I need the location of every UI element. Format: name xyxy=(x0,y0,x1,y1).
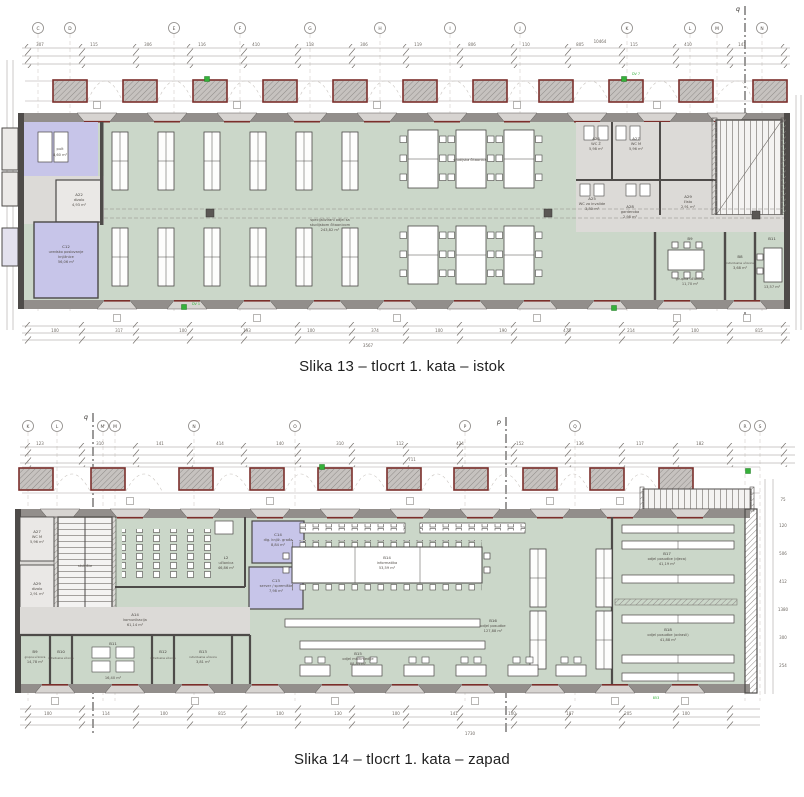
dim-value: 310 xyxy=(336,441,344,446)
room-area: 2,98 m² xyxy=(623,215,638,219)
dim-value: 123 xyxy=(36,441,44,446)
dim-value: 182 xyxy=(696,441,704,446)
dim-value: 118 xyxy=(306,42,314,47)
dim-value: 100 xyxy=(276,711,284,716)
dim-value: 205 xyxy=(624,711,632,716)
staircase xyxy=(712,118,786,215)
grid-letter: H xyxy=(378,26,381,32)
room-area: 56,06 m² xyxy=(58,260,75,264)
grid-letter: K xyxy=(626,26,629,32)
room-code: A26 xyxy=(592,136,600,141)
dim-value: 120 xyxy=(779,523,787,528)
room-name: knjižnice xyxy=(58,255,74,259)
small-table xyxy=(764,248,782,282)
room-area: 61,14 m² xyxy=(127,623,144,627)
figure-caption-slika-14: Slika 14 – tlocrt 1. kata – zapad xyxy=(0,751,804,768)
dim-value: 475 xyxy=(563,328,571,333)
grid-letter: M' xyxy=(101,424,106,430)
room-code: B13 xyxy=(199,649,207,654)
room-code: A22 xyxy=(75,192,83,197)
long-shelf xyxy=(285,619,480,627)
dim-value: 141 xyxy=(156,441,164,446)
dim-value: 100 xyxy=(392,711,400,716)
room-code: B18 xyxy=(664,627,672,632)
dim-value: 100 xyxy=(179,328,187,333)
room-area: 53,59 m² xyxy=(379,566,396,570)
room-area: 88,85 m² xyxy=(350,662,367,666)
room-name: odjel multimedije xyxy=(342,657,374,661)
room-area: 8,60 m² xyxy=(53,153,68,157)
room-area: 5,96 m² xyxy=(629,147,644,151)
marker-note: DV 7 xyxy=(632,72,640,76)
room-area: 5,98 m² xyxy=(589,147,604,151)
room-area: 14,78 m² xyxy=(27,660,44,664)
dim-value: 806 xyxy=(468,42,476,47)
dim-value: 100 xyxy=(51,328,59,333)
right-wall xyxy=(745,509,757,693)
room-a27 xyxy=(20,517,54,561)
dim-value: 805 xyxy=(576,42,584,47)
dim-value: 119 xyxy=(414,42,422,47)
room-name: specijalizirani odjel sa xyxy=(310,218,349,222)
dim-value: 506 xyxy=(779,551,787,556)
room-name: individualna učionica xyxy=(189,655,217,659)
room-code: B12 xyxy=(159,649,167,654)
right-dimension-lines xyxy=(796,95,801,330)
dim-value: 75 xyxy=(780,497,786,502)
grid-letter: J xyxy=(518,26,520,32)
grid-letter: P xyxy=(464,424,467,430)
room-code: B17 xyxy=(663,551,671,556)
room-code: B11 xyxy=(768,236,776,241)
dim-value: 130 xyxy=(334,711,342,716)
colonnade-piers: DV 7 xyxy=(25,72,788,102)
green-survey-marker xyxy=(746,469,751,474)
room-name: pult xyxy=(57,147,65,151)
dim-value: 424 xyxy=(456,441,464,446)
green-survey-marker xyxy=(182,305,187,310)
dim-value: 100 xyxy=(508,711,516,716)
dim-value: 410 xyxy=(684,42,692,47)
room-name: učionica xyxy=(219,561,234,565)
floor-plan-istok-drawing: C D E F G H I J K L M N q 307 115 306 11… xyxy=(0,0,804,350)
grid-axis-bubbles: C D E F G H I J K L M N xyxy=(33,23,768,34)
room-area: 2,91 m² xyxy=(681,205,696,209)
dim-value: 100 xyxy=(160,711,168,716)
left-wall xyxy=(18,113,24,309)
grid-letter: Q xyxy=(573,424,577,430)
dim-value: 112 xyxy=(396,441,404,446)
grid-letter: C xyxy=(36,26,39,32)
grid-letter: S xyxy=(759,424,762,430)
room-code: B8 xyxy=(737,254,743,259)
figure-slika-14: K L M' M N O P Q R S q p 123 310 141 414… xyxy=(0,409,804,768)
room-name: odjel posudbe xyxy=(480,624,506,628)
right-dimension-chain: 75 120 506 412 1380 300 254 xyxy=(765,479,789,694)
dim-total: 3567 xyxy=(363,343,374,348)
room-name: dizalo xyxy=(74,198,85,202)
grid-letter: M xyxy=(715,26,719,32)
green-survey-marker xyxy=(612,306,617,311)
dim-value: 100 xyxy=(691,328,699,333)
floor-plan-zapad-drawing: K L M' M N O P Q R S q p 123 310 141 414… xyxy=(0,409,804,739)
room-name: stubište xyxy=(78,564,93,568)
room-name: dig. knjiž. građa xyxy=(264,538,293,542)
room-name: grupna učionica xyxy=(676,277,705,281)
room-name: odjel posudbe (odrasli) xyxy=(647,633,689,637)
dim-value: 310 xyxy=(96,441,104,446)
room-code: B14 xyxy=(383,555,391,560)
green-survey-marker xyxy=(205,77,210,82)
dim-value: 152 xyxy=(516,441,524,446)
room-name: studijskom čitaonicom xyxy=(310,223,351,227)
marker-note: 853 xyxy=(653,696,659,700)
dim-value: 115 xyxy=(90,42,98,47)
document-page: C D E F G H I J K L M N q 307 115 306 11… xyxy=(0,0,804,797)
room-code: B9 xyxy=(32,649,38,654)
dim-value: 114 xyxy=(102,711,110,716)
room-area: 41,88 m² xyxy=(660,638,677,642)
dim-value: 110 xyxy=(522,42,530,47)
dim-total: 10464 xyxy=(594,39,607,44)
room-name: WC za invalide xyxy=(579,202,606,206)
grid-letter: I xyxy=(449,26,450,32)
dim-value: 306 xyxy=(144,42,152,47)
left-annex-rooms xyxy=(2,128,18,266)
room-area: 3,80 m² xyxy=(585,207,600,211)
dim-value: 100 xyxy=(44,711,52,716)
dim-value: 187 xyxy=(566,711,574,716)
room-name: server / spremište xyxy=(260,584,293,588)
grid-letter: M xyxy=(113,424,117,430)
section-marker-label: p xyxy=(496,418,501,426)
dim-value: 815 xyxy=(755,328,763,333)
external-staircase xyxy=(640,487,754,511)
room-area: 243,82 m² xyxy=(321,228,340,232)
dim-value: 100 xyxy=(307,328,315,333)
dim-value: 300 xyxy=(779,635,787,640)
dimension-chains-top: 123 310 141 414 140 310 112 424 152 136 … xyxy=(20,441,795,467)
room-name: dizalo xyxy=(32,587,43,591)
room-area: 2,91 m² xyxy=(30,592,45,596)
dim-value: 1380 xyxy=(778,607,789,612)
green-survey-marker xyxy=(622,77,627,82)
room-code: A27 xyxy=(632,136,640,141)
room-name: WC M xyxy=(631,142,641,146)
dim-total: 1730 xyxy=(465,731,476,736)
canopy-arcs xyxy=(54,474,658,491)
room-code: C14 xyxy=(274,532,282,537)
long-shelf xyxy=(300,641,485,649)
room-code: B16 xyxy=(489,618,497,623)
room-code: A25 xyxy=(588,196,596,201)
room-code: B11 xyxy=(109,641,117,646)
dim-value: 100 xyxy=(682,711,690,716)
room-name: grupna učionica xyxy=(25,655,46,659)
dim-value: 412 xyxy=(779,579,787,584)
grid-letter: R xyxy=(743,424,746,430)
room-area: 41,19 m² xyxy=(659,562,676,566)
dim-value: 254 xyxy=(779,663,787,668)
room-area: 46,86 m² xyxy=(218,566,235,570)
room-name: individualna učionica xyxy=(726,261,754,265)
room-name: studijska čitaonica xyxy=(453,158,486,162)
green-survey-marker xyxy=(320,465,325,470)
room-name: WC M xyxy=(32,535,42,539)
room-area: 11,70 m² xyxy=(682,282,699,286)
room-name: čisto xyxy=(684,200,692,204)
dim-value: 317 xyxy=(115,328,123,333)
section-marker-label: q xyxy=(84,413,88,421)
grid-letter: N xyxy=(760,26,763,32)
room-area: 5,96 m² xyxy=(30,540,45,544)
grid-letter: K xyxy=(27,424,30,430)
room-area: 4,93 m² xyxy=(72,203,87,207)
book-conveyor xyxy=(615,599,737,605)
dim-value: 116 xyxy=(198,42,206,47)
room-area: 13,57 m² xyxy=(764,285,781,289)
room-code: C12 xyxy=(62,244,70,249)
room-name: informatika xyxy=(377,561,398,565)
meeting-table xyxy=(668,250,704,270)
room-name: odjel posudbe (djeca) xyxy=(648,557,687,561)
room-name: WC Ž xyxy=(591,141,601,146)
dim-value: 117 xyxy=(636,441,644,446)
dim-value: 214 xyxy=(627,328,635,333)
room-code: B9 xyxy=(687,236,693,241)
room-code: B10 xyxy=(57,649,65,654)
room-code: L2 xyxy=(224,555,229,560)
grid-letter: G xyxy=(308,26,312,32)
dimension-chains-top: 307 115 306 116 410 118 306 119 806 110 … xyxy=(22,39,790,68)
dimension-chains-bottom: 100 114 100 815 100 130 100 141 100 187 … xyxy=(20,705,760,736)
dim-value: 374 xyxy=(371,328,379,333)
room-code: A14 xyxy=(131,612,139,617)
figure-slika-13: C D E F G H I J K L M N q 307 115 306 11… xyxy=(0,0,804,375)
dim-value: 100 xyxy=(435,328,443,333)
dim-value: 141 xyxy=(450,711,458,716)
room-code: A27 xyxy=(33,529,41,534)
section-marker-label: q xyxy=(736,5,740,13)
dim-value: 410 xyxy=(252,42,260,47)
dim-value: 306 xyxy=(360,42,368,47)
room-area: 8,84 m² xyxy=(271,543,286,547)
room-code: B15 xyxy=(354,651,362,656)
dim-value: 307 xyxy=(36,42,44,47)
dim-value: 136 xyxy=(576,441,584,446)
dim-value: 190 xyxy=(499,328,507,333)
dim-value: 414 xyxy=(216,441,224,446)
dimension-chains-bottom: 100 317 100 193 100 374 100 190 475 214 … xyxy=(22,322,790,348)
room-area: 16,40 m² xyxy=(105,676,122,680)
dim-value: 141 xyxy=(738,42,746,47)
grid-letter: N xyxy=(192,424,195,430)
dim-total: 711 xyxy=(408,457,416,462)
room-code: A28 xyxy=(626,204,634,209)
dim-value: 815 xyxy=(218,711,226,716)
room-area: 3,68 m² xyxy=(733,266,748,270)
room-area: 127,88 m² xyxy=(484,629,503,633)
room-name: individualna učionica xyxy=(48,657,74,660)
dim-value: 115 xyxy=(630,42,638,47)
figure-caption-slika-13: Slika 13 – tlocrt 1. kata – istok xyxy=(0,358,804,375)
room-area: 3,81 m² xyxy=(196,660,211,664)
grid-axis-bubbles: K L M' M N O P Q R S xyxy=(23,421,766,432)
grid-letter: E xyxy=(173,26,176,32)
room-name: uredsko poslovanje xyxy=(49,250,84,254)
room-name: garderoba xyxy=(621,210,639,214)
room-area: 7,98 m² xyxy=(269,589,284,593)
room-name: komunikacija xyxy=(123,618,147,622)
room-name: individualna učionica xyxy=(150,657,176,660)
dim-value: 193 xyxy=(243,328,251,333)
room-code: A29 xyxy=(684,194,692,199)
grid-letter: O xyxy=(293,424,297,430)
room-code: A29 xyxy=(33,581,41,586)
dim-value: 140 xyxy=(276,441,284,446)
marker-note: DV 1 xyxy=(192,302,200,306)
room-code: C13 xyxy=(272,578,280,583)
